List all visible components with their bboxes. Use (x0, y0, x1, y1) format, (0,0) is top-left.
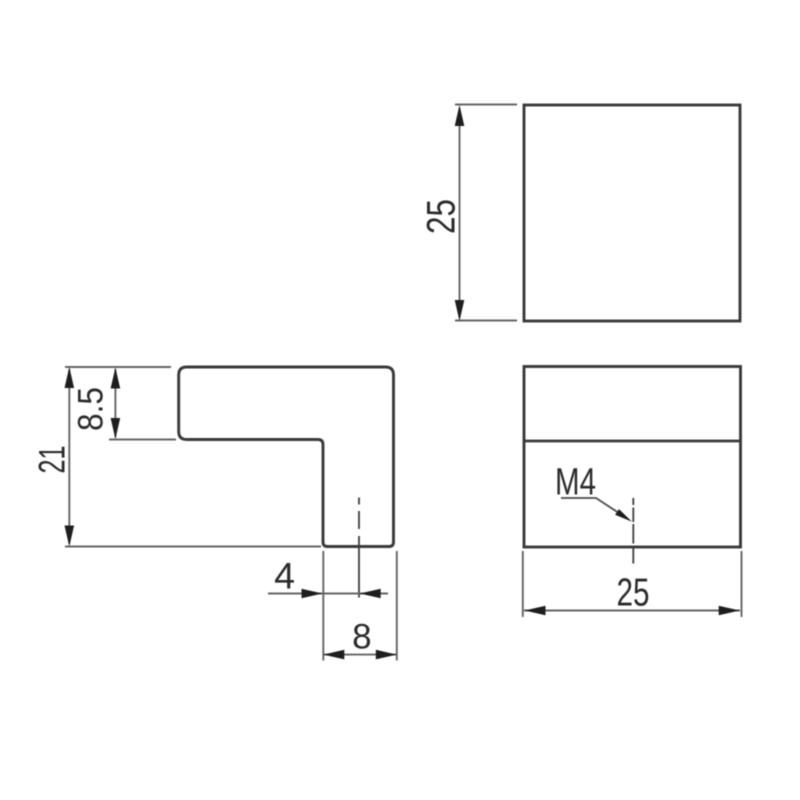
svg-text:8: 8 (352, 618, 371, 657)
svg-text:25: 25 (420, 199, 464, 234)
svg-text:8.5: 8.5 (72, 387, 111, 431)
svg-text:4: 4 (274, 555, 295, 597)
svg-text:25: 25 (617, 572, 650, 615)
svg-text:21: 21 (32, 446, 73, 474)
